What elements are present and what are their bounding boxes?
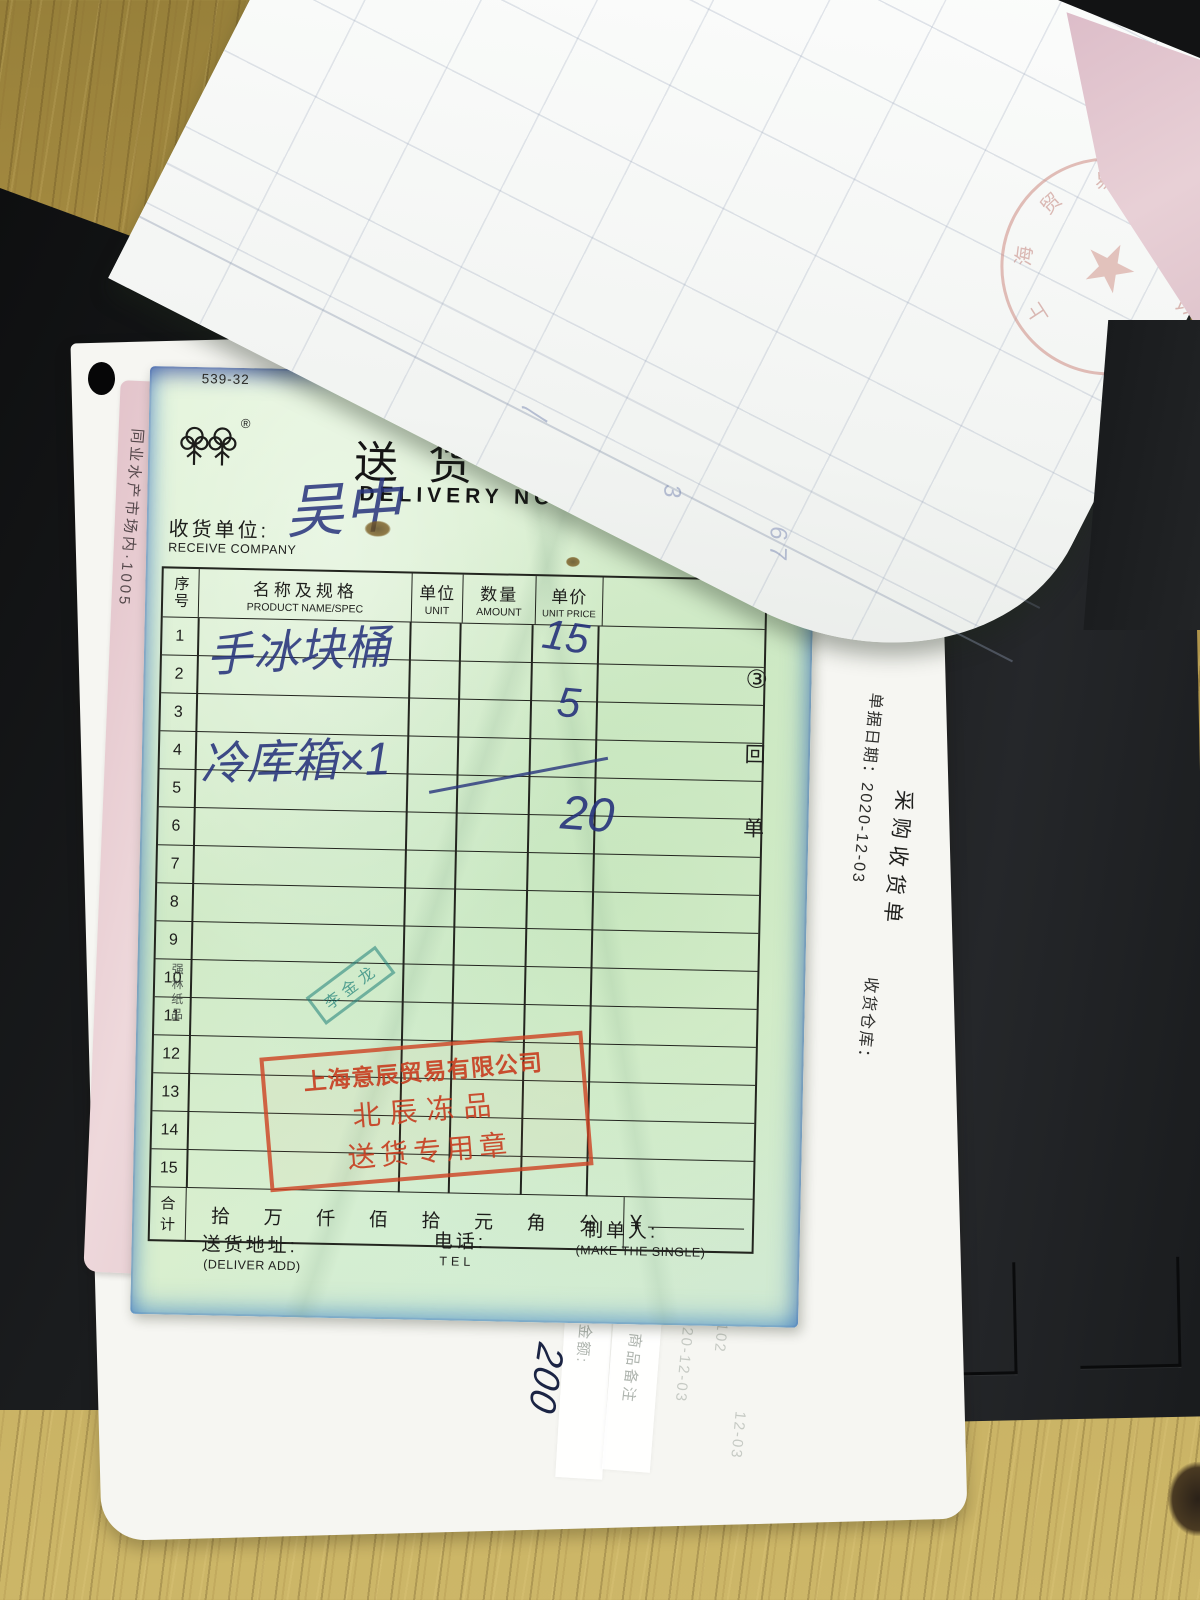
copy-number-column: ③ 回 单	[742, 665, 768, 843]
copy-circle-number: ③	[745, 665, 768, 695]
amount-label: 金额:	[572, 1323, 597, 1365]
header-unit: 单位 UNIT	[412, 574, 464, 623]
price3-handwriting: 20	[559, 785, 616, 844]
header-qty: 数量 AMOUNT	[463, 575, 537, 625]
remark-label: 商品备注	[618, 1332, 647, 1406]
pencil-mark: 〳	[517, 399, 556, 428]
groove-line	[1176, 1257, 1181, 1367]
warehouse-label: 收货仓库：	[853, 976, 886, 1068]
price2-handwriting: 5	[555, 678, 583, 728]
maker-label-cn: 制单人:	[584, 1215, 659, 1244]
dark-blob	[1168, 1462, 1200, 1536]
receiver-handwriting: 吴中	[282, 458, 403, 550]
desk-photo: { "green_form": { "form_code": "539-32",…	[0, 0, 1200, 1600]
address-label-en: (DELIVER ADD)	[203, 1257, 301, 1273]
tree-logo-icon	[178, 421, 245, 472]
doc-date-fragment: 12-03	[727, 1411, 749, 1461]
pink-edge-text: 同业水产市场内·1005	[114, 428, 149, 608]
pencil-mark: 6 7	[763, 526, 792, 560]
amount-blank-line	[648, 1212, 745, 1229]
form-code: 539-32	[202, 371, 250, 387]
dirt-speck	[566, 557, 580, 567]
address-label-cn: 送货地址:	[201, 1229, 298, 1258]
red-company-stamp: 上海意辰贸易有限公司 北辰冻品 送货专用章	[259, 1031, 593, 1193]
price1-handwriting: 15	[539, 610, 592, 664]
total-label: 合 计	[150, 1187, 187, 1240]
receiver-label-cn: 收货单位:	[168, 512, 269, 543]
printer-side-label: 强林纸品	[168, 963, 186, 1023]
receiver-label-en: RECEIVE COMPANY	[168, 540, 296, 557]
dirt-speck	[364, 521, 390, 538]
brand-logo: ®	[178, 421, 245, 472]
header-no: 序号	[163, 568, 200, 617]
pencil-mark: 3	[657, 484, 685, 498]
groove-line	[1080, 1364, 1181, 1369]
punch-hole-dot	[88, 362, 115, 395]
registered-mark: ®	[241, 416, 251, 431]
groove-line	[1012, 1262, 1017, 1374]
maker-label-en: (MAKE THE SINGLE)	[575, 1243, 705, 1260]
tel-label-cn: 电话:	[433, 1226, 486, 1254]
item1-handwriting: 手冰块桶	[205, 611, 392, 686]
tel-label-en: TEL	[439, 1254, 474, 1269]
purchase-sheet-title: 采购收货单	[877, 789, 920, 931]
item2-handwriting: 冷库箱×1	[199, 722, 391, 794]
